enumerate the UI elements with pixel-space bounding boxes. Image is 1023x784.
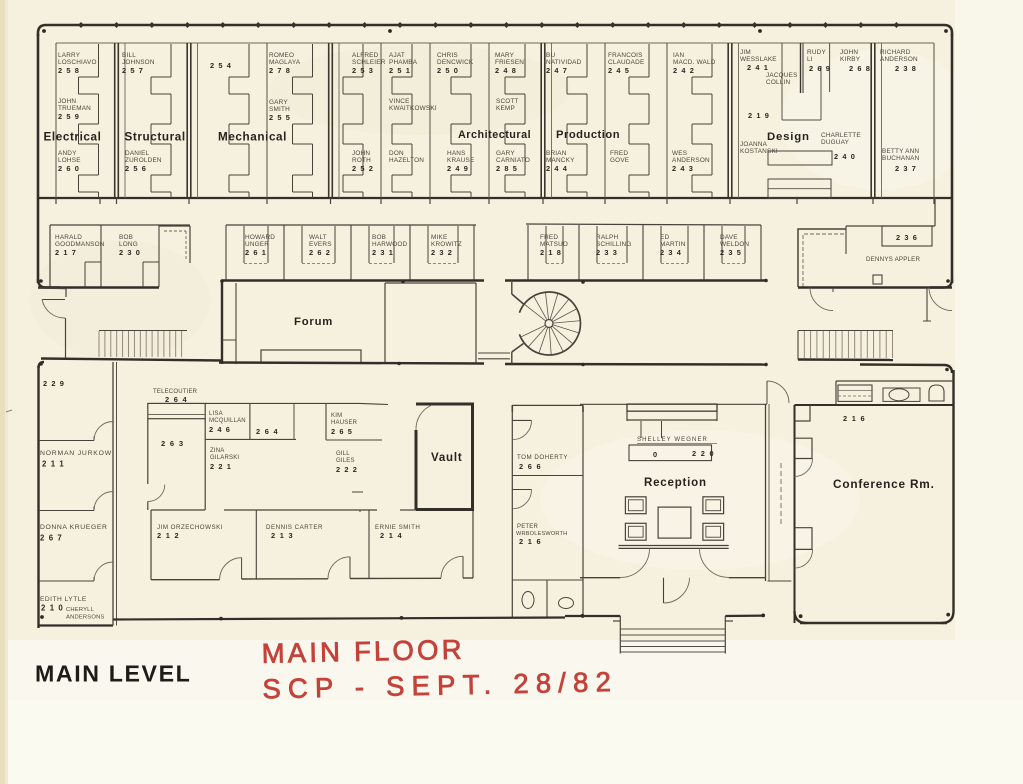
svg-text:2 4 6: 2 4 6	[209, 425, 231, 434]
svg-text:DONNA KRUEGER: DONNA KRUEGER	[40, 524, 107, 531]
svg-text:2 8 5: 2 8 5	[496, 164, 518, 173]
svg-text:ROTH: ROTH	[352, 157, 371, 164]
svg-text:2 1 2: 2 1 2	[157, 531, 180, 540]
svg-text:Structural: Structural	[125, 131, 186, 144]
svg-text:NATIVIDAD: NATIVIDAD	[546, 59, 582, 66]
svg-text:DENNYS APPLER: DENNYS APPLER	[866, 256, 921, 263]
svg-text:Design: Design	[767, 131, 810, 143]
svg-text:MCQUILLAN: MCQUILLAN	[209, 418, 246, 424]
svg-text:LI: LI	[807, 56, 813, 63]
svg-text:2 5 4: 2 5 4	[210, 61, 232, 70]
svg-text:2 4 1: 2 4 1	[747, 63, 769, 72]
svg-text:Mechanical: Mechanical	[218, 131, 287, 144]
svg-text:GILES: GILES	[336, 458, 355, 464]
svg-text:2 3 4: 2 3 4	[660, 248, 682, 257]
svg-text:TOM DOHERTY: TOM DOHERTY	[517, 454, 568, 461]
svg-text:2 6 9: 2 6 9	[809, 64, 831, 73]
svg-text:2 2 2: 2 2 2	[336, 465, 358, 474]
svg-text:KOSTANSKI: KOSTANSKI	[740, 148, 778, 155]
svg-text:2 4 3: 2 4 3	[672, 164, 694, 173]
svg-text:2 2 0: 2 2 0	[692, 449, 715, 458]
svg-text:Architectural: Architectural	[458, 129, 531, 141]
svg-text:2 2 1: 2 2 1	[210, 462, 232, 471]
svg-text:Forum: Forum	[294, 316, 333, 328]
svg-text:GOVE: GOVE	[610, 157, 629, 164]
svg-text:2 5 8: 2 5 8	[58, 66, 80, 75]
svg-text:2 5 6: 2 5 6	[125, 164, 147, 173]
svg-text:Conference Rm.: Conference Rm.	[833, 477, 935, 491]
svg-text:SMITH: SMITH	[269, 106, 290, 113]
svg-text:EDITH LYTLE: EDITH LYTLE	[40, 596, 87, 603]
svg-text:HAUSER: HAUSER	[331, 420, 358, 426]
svg-text:GILL: GILL	[336, 451, 350, 457]
svg-text:HARWOOD: HARWOOD	[372, 241, 408, 248]
svg-text:2 1 6: 2 1 6	[519, 537, 542, 546]
svg-text:2 6 1: 2 6 1	[245, 248, 267, 257]
svg-text:GILARSKI: GILARSKI	[210, 455, 239, 461]
svg-text:FRIESEN: FRIESEN	[495, 59, 524, 66]
svg-text:MANCKY: MANCKY	[546, 157, 575, 164]
svg-text:KWAITKOWSKI: KWAITKOWSKI	[389, 105, 437, 112]
svg-text:2 6 6: 2 6 6	[519, 462, 542, 471]
svg-text:ANDERSON: ANDERSON	[672, 157, 710, 164]
svg-text:2 4 9: 2 4 9	[447, 164, 469, 173]
svg-text:SHELLEY WEGNER: SHELLEY WEGNER	[637, 437, 708, 443]
svg-text:MACD. WALD: MACD. WALD	[673, 59, 716, 66]
svg-text:2 6 3: 2 6 3	[161, 439, 184, 448]
svg-text:2 6 0: 2 6 0	[58, 164, 80, 173]
svg-text:COLLIN: COLLIN	[766, 79, 790, 86]
svg-text:KEMP: KEMP	[496, 105, 515, 112]
svg-text:0: 0	[653, 450, 658, 459]
svg-text:2 1 8: 2 1 8	[540, 248, 562, 257]
svg-text:BUCHANAN: BUCHANAN	[882, 155, 920, 162]
svg-text:2 5 5: 2 5 5	[269, 113, 291, 122]
svg-text:MAIN LEVEL: MAIN LEVEL	[35, 661, 191, 687]
svg-text:2 5 7: 2 5 7	[122, 66, 144, 75]
svg-text:2 3 8: 2 3 8	[895, 64, 917, 73]
svg-text:2 6 4: 2 6 4	[256, 427, 279, 436]
svg-text:ANDERSON: ANDERSON	[880, 56, 918, 63]
svg-text:2 3 3: 2 3 3	[596, 248, 618, 257]
svg-text:KIRBY: KIRBY	[840, 56, 861, 63]
svg-text:2 1 6: 2 1 6	[843, 414, 866, 423]
svg-text:2 4 2: 2 4 2	[673, 66, 695, 75]
svg-text:2 1 1: 2 1 1	[42, 460, 65, 469]
svg-text:WESSLAKE: WESSLAKE	[740, 56, 777, 63]
svg-text:ANDERSONS: ANDERSONS	[66, 615, 105, 621]
svg-text:2 1 4: 2 1 4	[380, 531, 403, 540]
svg-text:2 6 7: 2 6 7	[40, 534, 63, 543]
svg-text:2 2 9: 2 2 9	[43, 379, 65, 388]
svg-text:2 6 5: 2 6 5	[331, 427, 353, 436]
svg-text:JIM ORZECHOWSKI: JIM ORZECHOWSKI	[157, 524, 223, 531]
svg-text:MAGLAYA: MAGLAYA	[269, 59, 301, 66]
svg-text:KIM: KIM	[331, 413, 342, 419]
svg-text:2 6 8: 2 6 8	[849, 64, 871, 73]
svg-text:PETER: PETER	[517, 524, 538, 530]
svg-text:NORMAN JURKOW: NORMAN JURKOW	[40, 450, 112, 457]
svg-text:KRAUSE: KRAUSE	[447, 157, 474, 164]
svg-text:KROWITZ: KROWITZ	[431, 241, 462, 248]
svg-text:ZINA: ZINA	[210, 448, 224, 454]
svg-text:2 6 2: 2 6 2	[309, 248, 331, 257]
svg-text:2 3 0: 2 3 0	[119, 248, 141, 257]
svg-text:Production: Production	[556, 129, 620, 141]
svg-text:Electrical: Electrical	[44, 131, 102, 144]
svg-text:Reception: Reception	[644, 477, 707, 489]
svg-text:SCHLEIER: SCHLEIER	[352, 59, 386, 66]
svg-text:ZUROLDEN: ZUROLDEN	[125, 157, 162, 164]
svg-text:2 5 2: 2 5 2	[352, 164, 374, 173]
svg-text:2 4 4: 2 4 4	[546, 164, 568, 173]
svg-text:2 1 9: 2 1 9	[748, 111, 770, 120]
svg-text:HAZELTON: HAZELTON	[389, 157, 424, 164]
svg-text:WELDON: WELDON	[720, 241, 749, 248]
svg-text:JOHNSON: JOHNSON	[122, 59, 155, 66]
svg-text:2 3 5: 2 3 5	[720, 248, 742, 257]
svg-text:2 5 1: 2 5 1	[389, 66, 411, 75]
svg-text:2 1 3: 2 1 3	[271, 531, 294, 540]
svg-text:MAIN FLOOR: MAIN FLOOR	[261, 634, 465, 669]
svg-text:ERNIE SMITH: ERNIE SMITH	[375, 524, 420, 531]
svg-text:CARNIATO: CARNIATO	[496, 157, 530, 164]
svg-text:MATSUO: MATSUO	[540, 241, 568, 248]
svg-text:DENNIS CARTER: DENNIS CARTER	[266, 524, 323, 531]
svg-text:GOODMANSON: GOODMANSON	[55, 241, 105, 248]
svg-text:LOSCHIAVO: LOSCHIAVO	[58, 59, 97, 66]
svg-text:2 7 8: 2 7 8	[269, 66, 291, 75]
svg-text:MARTIN: MARTIN	[660, 241, 686, 248]
svg-text:2 4 5: 2 4 5	[608, 66, 630, 75]
svg-text:2 3 1: 2 3 1	[372, 248, 394, 257]
svg-text:2 1 7: 2 1 7	[55, 248, 77, 257]
svg-text:DUGUAY: DUGUAY	[821, 139, 850, 146]
svg-text:2 1 0: 2 1 0	[41, 604, 64, 613]
svg-text:2 4 7: 2 4 7	[546, 66, 568, 75]
svg-text:2 5 9: 2 5 9	[58, 112, 80, 121]
svg-text:EVERS: EVERS	[309, 241, 332, 248]
svg-text:CHERYLL: CHERYLL	[66, 607, 95, 613]
svg-text:LOHSE: LOHSE	[58, 157, 81, 164]
svg-text:LISA: LISA	[209, 411, 223, 417]
svg-text:Vault: Vault	[431, 452, 462, 464]
svg-text:TRUEMAN: TRUEMAN	[58, 105, 91, 112]
svg-text:2 5 0: 2 5 0	[437, 66, 459, 75]
svg-text:UNGER: UNGER	[245, 241, 269, 248]
svg-text:2 3 7: 2 3 7	[895, 164, 917, 173]
svg-text:DENCWICK: DENCWICK	[437, 59, 474, 66]
svg-text:2 3 2: 2 3 2	[431, 248, 453, 257]
svg-text:2 6 4: 2 6 4	[165, 395, 188, 404]
svg-text:CLAUDADE: CLAUDADE	[608, 59, 644, 66]
svg-text:2 4 0: 2 4 0	[834, 152, 856, 161]
svg-text:PHAMBA: PHAMBA	[389, 59, 418, 66]
svg-text:2 5 3: 2 5 3	[352, 66, 374, 75]
svg-text:LONG: LONG	[119, 241, 138, 248]
svg-text:2 3 6: 2 3 6	[896, 233, 918, 242]
svg-text:2 4 8: 2 4 8	[495, 66, 517, 75]
svg-text:SCHILLING: SCHILLING	[596, 241, 632, 248]
